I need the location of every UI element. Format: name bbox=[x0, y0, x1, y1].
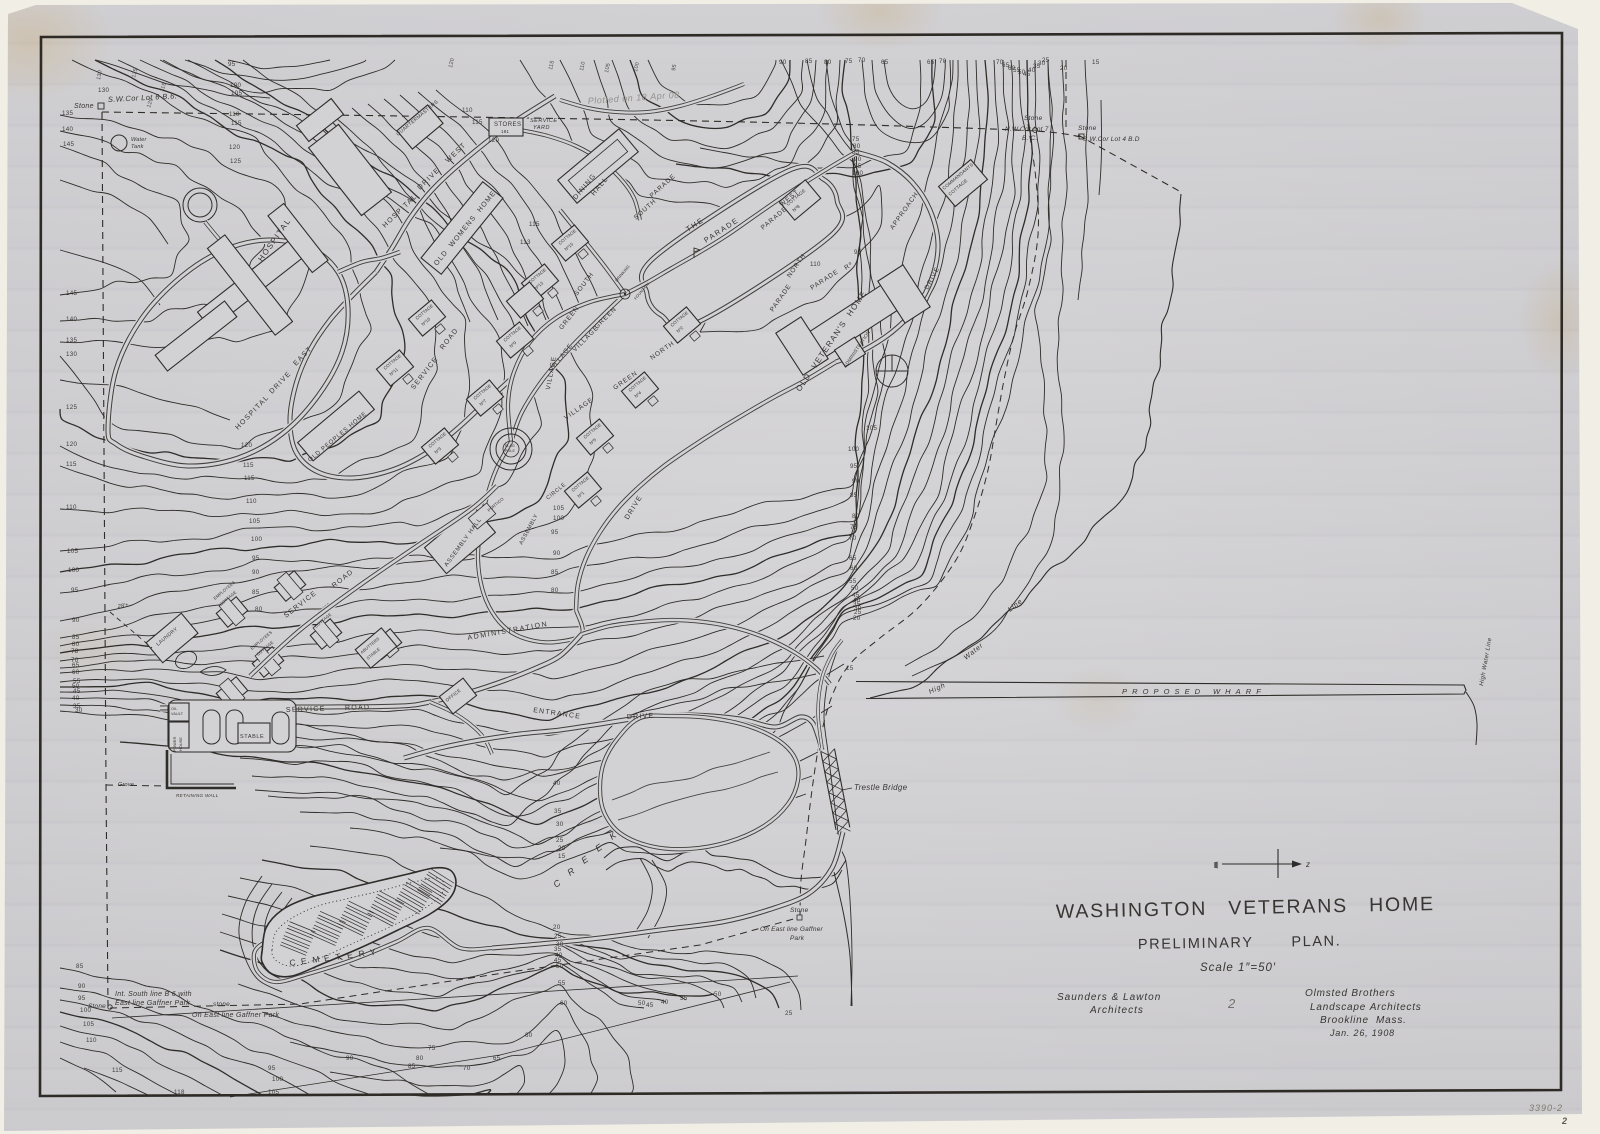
svg-text:W H A R F: W H A R F bbox=[1213, 687, 1262, 696]
svg-text:113: 113 bbox=[520, 239, 531, 246]
svg-text:110: 110 bbox=[86, 1037, 97, 1044]
svg-text:65: 65 bbox=[927, 59, 935, 66]
svg-text:105: 105 bbox=[67, 548, 78, 555]
svg-text:E: E bbox=[593, 841, 605, 853]
svg-text:80: 80 bbox=[72, 641, 80, 648]
svg-text:85: 85 bbox=[850, 492, 858, 499]
svg-text:35: 35 bbox=[680, 995, 688, 1002]
svg-text:ROAD: ROAD bbox=[345, 704, 371, 712]
svg-text:Line: Line bbox=[1007, 598, 1024, 614]
svg-text:120: 120 bbox=[229, 144, 240, 151]
svg-text:S.W.Cor Lot 4 B.D: S.W.Cor Lot 4 B.D bbox=[1083, 136, 1140, 143]
svg-text:181: 181 bbox=[501, 129, 509, 134]
svg-text:DRIVE: DRIVE bbox=[627, 713, 655, 721]
svg-text:75: 75 bbox=[852, 136, 860, 143]
svg-text:Scale 1″=50′: Scale 1″=50′ bbox=[1200, 962, 1276, 974]
svg-text:R: R bbox=[358, 948, 367, 959]
svg-text:90: 90 bbox=[553, 550, 561, 557]
svg-text:POWER: POWER bbox=[173, 736, 177, 751]
svg-text:90: 90 bbox=[854, 156, 862, 163]
svg-text:40: 40 bbox=[553, 780, 561, 787]
svg-text:DRIVE: DRIVE bbox=[268, 370, 293, 395]
svg-text:PARADE: PARADE bbox=[649, 173, 678, 200]
svg-text:WASHINGTON VETERANS HOME: WASHINGTON VETERANS HOME bbox=[1056, 893, 1435, 923]
svg-text:HOSPITAL: HOSPITAL bbox=[234, 394, 271, 431]
svg-text:65: 65 bbox=[72, 662, 80, 669]
svg-text:130: 130 bbox=[66, 351, 77, 358]
svg-text:PARADE: PARADE bbox=[769, 283, 793, 313]
svg-text:115: 115 bbox=[66, 461, 77, 468]
svg-text:Stone: Stone bbox=[88, 1003, 106, 1010]
svg-text:B. C.: B. C. bbox=[1022, 135, 1037, 142]
svg-text:85: 85 bbox=[408, 1063, 416, 1070]
svg-text:120: 120 bbox=[488, 137, 499, 144]
svg-text:OIL: OIL bbox=[171, 707, 177, 711]
svg-text:80: 80 bbox=[852, 513, 860, 520]
svg-text:105: 105 bbox=[866, 425, 877, 432]
svg-text:20: 20 bbox=[853, 615, 861, 622]
svg-text:85: 85 bbox=[551, 569, 559, 576]
svg-text:145: 145 bbox=[63, 141, 74, 148]
svg-text:Olmsted Brothers: Olmsted Brothers bbox=[1305, 988, 1396, 999]
svg-text:90: 90 bbox=[252, 569, 260, 576]
svg-text:95: 95 bbox=[854, 163, 862, 170]
svg-text:Int. South line B 6 with: Int. South line B 6 with bbox=[115, 991, 192, 998]
svg-text:RETAINING WALL: RETAINING WALL bbox=[176, 793, 219, 798]
svg-text:55: 55 bbox=[558, 980, 566, 987]
svg-text:110: 110 bbox=[229, 111, 240, 118]
svg-text:SERVICE: SERVICE bbox=[286, 706, 326, 714]
svg-text:15: 15 bbox=[558, 853, 566, 860]
svg-text:55: 55 bbox=[849, 578, 857, 585]
svg-text:75: 75 bbox=[850, 524, 858, 531]
svg-text:2: 2 bbox=[1227, 996, 1236, 1011]
svg-text:120: 120 bbox=[241, 442, 252, 449]
svg-text:65: 65 bbox=[493, 1055, 501, 1062]
svg-text:100: 100 bbox=[633, 62, 641, 73]
svg-text:45: 45 bbox=[73, 688, 81, 695]
svg-text:SERVICE: SERVICE bbox=[530, 118, 558, 124]
svg-text:Park: Park bbox=[790, 935, 805, 942]
svg-text:Stone: Stone bbox=[74, 103, 94, 110]
svg-text:95: 95 bbox=[268, 1065, 276, 1072]
svg-text:On East line Gaffner: On East line Gaffner bbox=[760, 926, 824, 933]
svg-text:75: 75 bbox=[428, 1045, 436, 1052]
svg-text:100: 100 bbox=[251, 536, 262, 543]
svg-text:28′±: 28′± bbox=[116, 603, 129, 611]
svg-text:45: 45 bbox=[646, 1002, 654, 1009]
svg-text:105: 105 bbox=[604, 63, 612, 74]
svg-text:25: 25 bbox=[554, 933, 562, 940]
svg-text:85: 85 bbox=[76, 963, 84, 970]
svg-text:Stone: Stone bbox=[1024, 115, 1043, 122]
svg-text:15: 15 bbox=[1092, 59, 1100, 66]
svg-text:STABLE: STABLE bbox=[240, 734, 264, 740]
svg-text:VAULT: VAULT bbox=[171, 712, 184, 716]
svg-text:115: 115 bbox=[112, 1067, 123, 1074]
svg-text:130: 130 bbox=[98, 87, 109, 94]
svg-text:50: 50 bbox=[851, 585, 859, 592]
svg-text:105: 105 bbox=[249, 518, 260, 525]
svg-text:C: C bbox=[551, 877, 563, 890]
svg-text:E: E bbox=[579, 853, 591, 865]
svg-text:ASSEMBLY: ASSEMBLY bbox=[518, 513, 539, 546]
svg-text:z: z bbox=[1305, 860, 1311, 869]
svg-text:95: 95 bbox=[551, 529, 559, 536]
svg-text:85: 85 bbox=[252, 589, 260, 596]
svg-text:Jan. 26, 1908: Jan. 26, 1908 bbox=[1329, 1028, 1395, 1038]
svg-text:100: 100 bbox=[852, 170, 863, 177]
svg-text:40: 40 bbox=[661, 999, 669, 1006]
svg-text:75: 75 bbox=[845, 58, 853, 65]
svg-text:N.W.Cor Lot 7: N.W.Cor Lot 7 bbox=[1005, 126, 1049, 133]
svg-text:95: 95 bbox=[671, 64, 678, 72]
svg-text:Grove: Grove bbox=[118, 782, 134, 788]
svg-text:135: 135 bbox=[62, 110, 73, 117]
svg-text:25: 25 bbox=[1042, 57, 1050, 64]
svg-text:70: 70 bbox=[849, 535, 857, 542]
svg-text:135: 135 bbox=[66, 337, 77, 344]
svg-text:On East line Gaffner Park: On East line Gaffner Park bbox=[192, 1012, 279, 1019]
svg-text:NORTH: NORTH bbox=[649, 340, 676, 362]
svg-text:Water: Water bbox=[131, 137, 148, 143]
svg-text:90: 90 bbox=[78, 983, 86, 990]
svg-text:140: 140 bbox=[62, 126, 73, 133]
svg-text:20: 20 bbox=[558, 845, 566, 852]
svg-text:100: 100 bbox=[272, 1076, 283, 1083]
svg-text:100: 100 bbox=[848, 446, 859, 453]
svg-text:50: 50 bbox=[714, 991, 722, 998]
svg-text:P R O P O S E D: P R O P O S E D bbox=[1122, 687, 1202, 696]
svg-text:110: 110 bbox=[810, 261, 821, 268]
svg-text:100: 100 bbox=[68, 567, 79, 574]
svg-text:85: 85 bbox=[805, 58, 813, 65]
svg-text:65: 65 bbox=[849, 555, 857, 562]
svg-text:DRIVE: DRIVE bbox=[924, 266, 942, 291]
svg-text:118: 118 bbox=[174, 1089, 185, 1096]
svg-text:85: 85 bbox=[72, 634, 80, 641]
svg-text:90: 90 bbox=[346, 1055, 354, 1062]
svg-text:110: 110 bbox=[462, 107, 473, 114]
svg-text:125: 125 bbox=[230, 158, 241, 165]
svg-text:120: 120 bbox=[66, 441, 77, 448]
svg-text:Stone: Stone bbox=[790, 907, 809, 914]
svg-text:Stone: Stone bbox=[1078, 125, 1097, 132]
svg-text:50: 50 bbox=[638, 1000, 646, 1007]
svg-text:115: 115 bbox=[243, 462, 254, 469]
svg-text:115: 115 bbox=[231, 120, 242, 127]
svg-text:Tank: Tank bbox=[131, 144, 144, 150]
svg-text:90: 90 bbox=[72, 617, 80, 624]
svg-text:STORES: STORES bbox=[494, 122, 522, 128]
svg-text:95: 95 bbox=[252, 555, 260, 562]
svg-text:95: 95 bbox=[854, 249, 862, 256]
svg-text:95: 95 bbox=[850, 463, 858, 470]
svg-text:130: 130 bbox=[96, 70, 104, 81]
svg-text:125: 125 bbox=[66, 404, 77, 411]
svg-text:78: 78 bbox=[71, 648, 79, 655]
svg-text:60: 60 bbox=[850, 565, 858, 572]
svg-text:70: 70 bbox=[858, 57, 866, 64]
svg-text:DRINKING: DRINKING bbox=[614, 264, 631, 283]
svg-text:Landscape Architects: Landscape Architects bbox=[1310, 1002, 1422, 1013]
svg-text:FLAG: FLAG bbox=[505, 444, 515, 448]
svg-text:High Water Line: High Water Line bbox=[1479, 637, 1493, 686]
svg-text:105: 105 bbox=[553, 505, 564, 512]
svg-text:20: 20 bbox=[553, 924, 561, 931]
svg-text:100: 100 bbox=[553, 515, 564, 522]
svg-text:3390-2: 3390-2 bbox=[1529, 1103, 1563, 1113]
svg-text:60: 60 bbox=[560, 1000, 568, 1007]
svg-text:20: 20 bbox=[1060, 65, 1068, 72]
svg-text:105: 105 bbox=[83, 1021, 94, 1028]
svg-text:140: 140 bbox=[66, 316, 77, 323]
svg-text:120: 120 bbox=[448, 58, 456, 69]
svg-text:90: 90 bbox=[779, 59, 787, 66]
svg-text:Trestle Bridge: Trestle Bridge bbox=[854, 783, 908, 792]
svg-text:40: 40 bbox=[72, 695, 80, 702]
svg-text:stone: stone bbox=[213, 1001, 230, 1008]
svg-text:60: 60 bbox=[72, 669, 80, 676]
svg-text:30: 30 bbox=[556, 821, 564, 828]
svg-text:105: 105 bbox=[231, 90, 242, 97]
svg-text:95: 95 bbox=[228, 61, 236, 68]
svg-text:105: 105 bbox=[268, 1089, 279, 1096]
svg-text:High: High bbox=[928, 682, 947, 696]
svg-text:35: 35 bbox=[554, 808, 562, 815]
svg-text:R: R bbox=[565, 865, 577, 878]
svg-text:80: 80 bbox=[824, 59, 832, 66]
svg-text:110: 110 bbox=[579, 61, 587, 71]
svg-text:80: 80 bbox=[416, 1055, 424, 1062]
svg-text:90: 90 bbox=[852, 478, 860, 485]
svg-text:125: 125 bbox=[131, 68, 139, 79]
svg-text:ROAD: ROAD bbox=[331, 568, 355, 589]
svg-text:2: 2 bbox=[1561, 1116, 1568, 1126]
svg-text:145: 145 bbox=[66, 290, 77, 297]
svg-text:15: 15 bbox=[846, 665, 854, 672]
svg-text:25: 25 bbox=[556, 837, 564, 844]
svg-text:80: 80 bbox=[551, 587, 559, 594]
svg-text:YARD: YARD bbox=[533, 125, 550, 131]
svg-text:Saunders & Lawton: Saunders & Lawton bbox=[1057, 992, 1161, 1003]
svg-text:110: 110 bbox=[66, 504, 77, 511]
svg-text:95: 95 bbox=[78, 995, 86, 1002]
svg-text:50: 50 bbox=[556, 963, 564, 970]
svg-text:115: 115 bbox=[244, 475, 255, 482]
svg-text:Rº: Rº bbox=[843, 261, 854, 272]
svg-text:70: 70 bbox=[939, 58, 947, 65]
svg-text:115: 115 bbox=[529, 221, 540, 228]
svg-text:Plotted on 18 Apr 08: Plotted on 18 Apr 08 bbox=[587, 90, 680, 106]
svg-text:110: 110 bbox=[246, 498, 257, 505]
svg-text:65: 65 bbox=[881, 59, 889, 66]
svg-text:HOUSE: HOUSE bbox=[179, 737, 183, 751]
svg-text:POLE: POLE bbox=[505, 449, 515, 453]
svg-text:East line Gaffner Park: East line Gaffner Park bbox=[115, 1000, 190, 1007]
svg-text:80: 80 bbox=[255, 606, 263, 613]
svg-text:85: 85 bbox=[852, 149, 860, 156]
svg-text:25: 25 bbox=[785, 1010, 793, 1017]
svg-text:115: 115 bbox=[472, 119, 483, 126]
svg-text:30: 30 bbox=[75, 707, 83, 714]
svg-text:Architects: Architects bbox=[1089, 1005, 1144, 1016]
svg-text:60: 60 bbox=[525, 1032, 533, 1039]
svg-text:PRELIMINARY PLAN.: PRELIMINARY PLAN. bbox=[1138, 933, 1342, 953]
svg-text:70: 70 bbox=[463, 1065, 471, 1072]
svg-text:Brookline Mass.: Brookline Mass. bbox=[1320, 1015, 1407, 1026]
svg-text:M: M bbox=[312, 954, 322, 965]
svg-text:95: 95 bbox=[71, 587, 79, 594]
svg-text:100: 100 bbox=[230, 82, 241, 89]
svg-text:115: 115 bbox=[548, 60, 556, 70]
svg-text:PARADE: PARADE bbox=[809, 268, 840, 291]
